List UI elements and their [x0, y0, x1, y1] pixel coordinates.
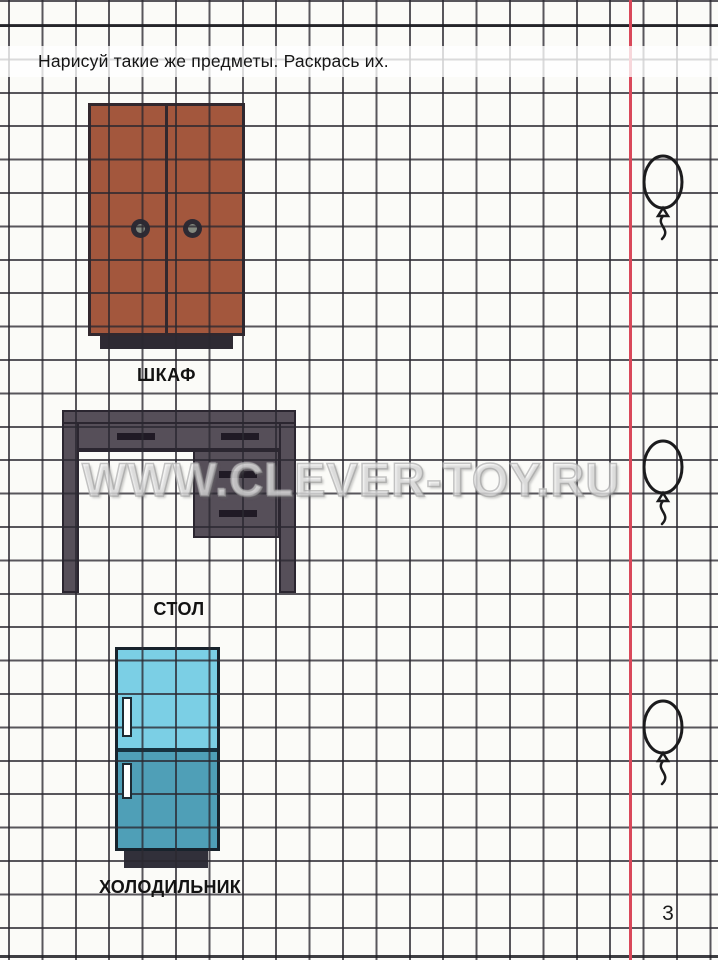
fridge-drawing — [115, 647, 220, 851]
fridge-label: ХОЛОДИЛЬНИК — [85, 877, 255, 898]
desk-left-leg — [62, 422, 79, 593]
desk-drawer-pedestal — [193, 450, 280, 538]
wardrobe-label: ШКАФ — [88, 365, 245, 386]
notebook-margin-line — [629, 0, 632, 960]
balloon-icon — [641, 438, 685, 532]
fridge-base — [124, 851, 208, 868]
top-rule-line — [0, 24, 718, 27]
wardrobe-base — [100, 336, 233, 349]
bottom-rule-line — [0, 955, 718, 958]
wardrobe-knob-center — [188, 224, 197, 233]
page-number: 3 — [650, 902, 686, 926]
desk-label: СТОЛ — [62, 599, 296, 620]
desk-right-leg — [279, 422, 296, 593]
wardrobe-knob-center — [136, 224, 145, 233]
balloon-icon — [641, 698, 685, 792]
fridge-handle — [122, 763, 132, 799]
desk-drawer-handle — [219, 510, 257, 517]
fridge-handle — [122, 697, 132, 737]
fridge-lower-door — [118, 752, 217, 848]
watermark-text: WWW.CLEVER-TOY.RU — [82, 452, 642, 507]
instruction-band: Нарисуй такие же предметы. Раскрась их. — [0, 46, 718, 77]
balloon-icon — [641, 153, 685, 247]
desk-drawer-handle — [117, 433, 155, 440]
wardrobe-door-divider — [165, 103, 168, 336]
wardrobe-knob-icon — [131, 219, 150, 238]
workbook-page: Нарисуй такие же предметы. Раскрась их. … — [0, 0, 718, 960]
instruction-text: Нарисуй такие же предметы. Раскрась их. — [38, 51, 389, 72]
fridge-freezer-door — [118, 650, 217, 748]
desk-drawer-handle — [221, 433, 259, 440]
wardrobe-knob-icon — [183, 219, 202, 238]
desk-drawer-handle — [219, 471, 257, 478]
